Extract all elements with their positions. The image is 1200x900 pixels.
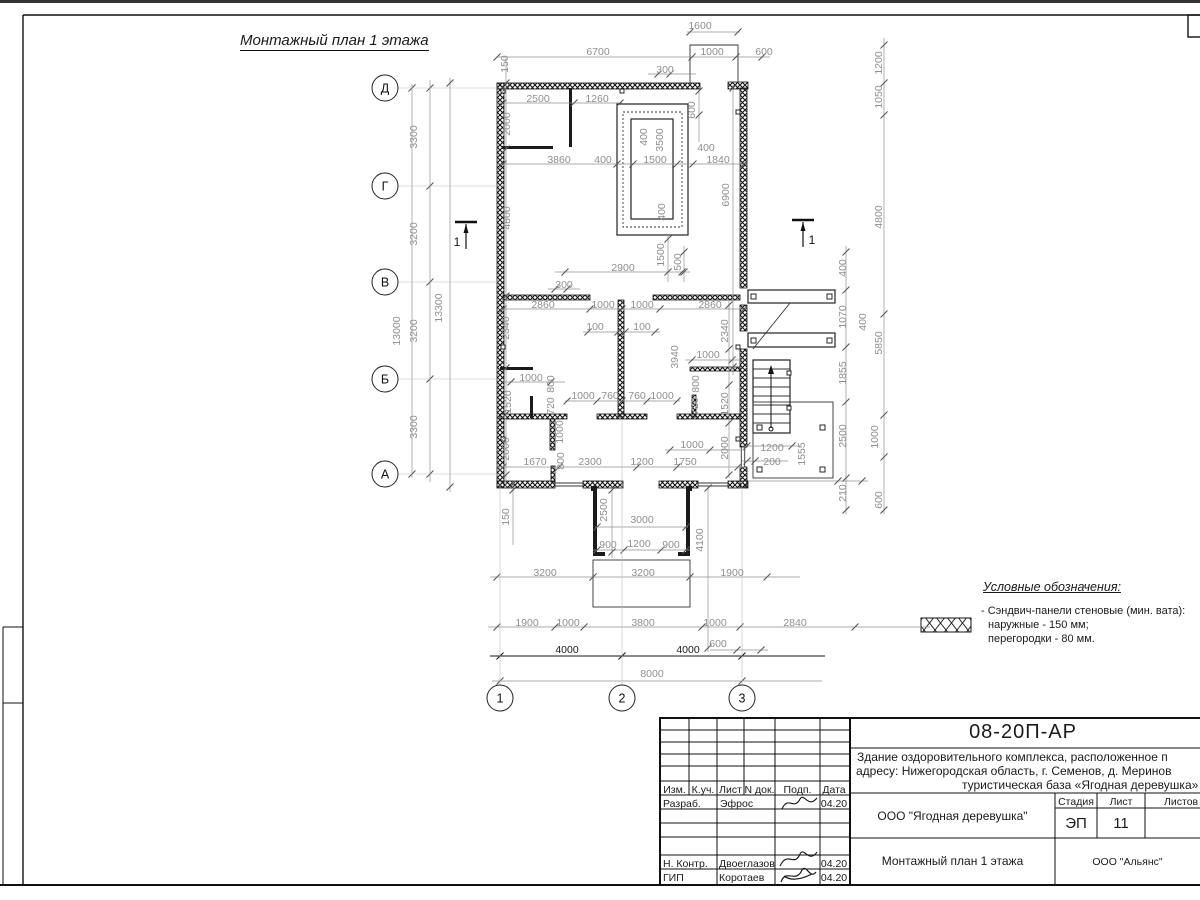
role-gip: ГИП — [663, 872, 684, 884]
dimension-label: 4000 — [555, 644, 579, 656]
dimension-label: 900 — [599, 539, 617, 551]
dimension-label: 760 — [628, 390, 646, 402]
dimension-label: 1070 — [837, 305, 849, 329]
axis-bubble-label: 2 — [619, 692, 626, 706]
dimension-label: 8000 — [640, 668, 664, 680]
dimension-label: 1855 — [837, 361, 849, 385]
col-list: Лист — [717, 784, 744, 796]
company-name: ООО "Альянс" — [1055, 856, 1200, 868]
dimension-label: 1000 — [630, 299, 654, 311]
dimension-label: 300 — [555, 279, 573, 291]
legend-line: перегородки - 80 мм. — [988, 633, 1095, 645]
dimension-label: 200 — [763, 456, 781, 468]
axis-bubble-label: 1 — [497, 692, 504, 706]
dimension-label: 1200 — [873, 51, 885, 75]
drawing-title: Монтажный план 1 этажа — [240, 32, 429, 51]
dimension-label: 100 — [586, 321, 604, 333]
dimension-label: 600 — [686, 101, 698, 119]
dimension-label: 600 — [755, 46, 773, 58]
signature — [776, 864, 820, 888]
project-description-line: туристическая база «Ягодная деревушка» — [962, 778, 1198, 792]
org-name: ООО "Ягодная деревушка" — [850, 809, 1055, 823]
dimension-label: 3200 — [408, 319, 420, 343]
drawing-name: Монтажный план 1 этажа — [850, 854, 1055, 868]
dimension-label: 3500 — [654, 128, 666, 152]
role-razrab: Разраб. — [663, 798, 701, 810]
dimension-label: 2500 — [526, 93, 550, 105]
dimension-label: 2340 — [719, 319, 731, 343]
dimension-label: 2000 — [500, 437, 512, 461]
dimension-label: 6900 — [720, 183, 732, 207]
dimension-label: 4100 — [694, 528, 706, 552]
dimension-label: 400 — [638, 128, 650, 146]
dimension-label: 1050 — [873, 85, 885, 109]
dimension-label: 4000 — [676, 644, 700, 656]
dimension-label: 800 — [555, 452, 567, 470]
staircase — [753, 303, 791, 433]
dimension-label: 3300 — [408, 125, 420, 149]
dimension-label: 900 — [662, 539, 680, 551]
dimension-label: 13300 — [433, 293, 445, 322]
dimension-label: 400 — [656, 203, 668, 221]
col-data: Дата — [820, 784, 848, 796]
dimension-label: 720 — [545, 397, 557, 415]
dimension-label: 400 — [697, 142, 715, 154]
dimension-label: 760 — [601, 390, 619, 402]
dimension-label: 500 — [672, 253, 684, 271]
dimension-label: 2860 — [698, 299, 722, 311]
dimension-label: 720 — [689, 397, 701, 415]
dimension-label: 400 — [857, 313, 869, 331]
dimension-label: 3800 — [631, 617, 655, 629]
dimension-label: 100 — [633, 321, 651, 333]
dimension-label: 1000 — [591, 299, 615, 311]
dimension-label: 150 — [499, 55, 511, 73]
col-izm: Изм. — [660, 784, 689, 796]
project-description-line: Здание оздоровительного комплекса, распо… — [857, 750, 1168, 764]
section-mark-label: 1 — [809, 233, 816, 247]
dimension-label: 4800 — [501, 206, 513, 230]
section-mark-label: 1 — [454, 235, 461, 249]
dimension-label: 2340 — [500, 316, 512, 340]
dimension-label: 1000 — [571, 390, 595, 402]
dimension-label: 1000 — [703, 617, 727, 629]
dimension-label: 600 — [709, 638, 727, 650]
dimension-label: 2840 — [783, 617, 807, 629]
dimension-label: 1200 — [627, 538, 651, 550]
dimension-label: 1000 — [556, 617, 580, 629]
date-nkontr: 04.20 — [820, 858, 848, 870]
dimension-label: 3300 — [408, 415, 420, 439]
stage-value: ЭП — [1055, 815, 1097, 832]
dimension-label: 1900 — [720, 567, 744, 579]
name-gip: Коротаев — [719, 872, 764, 884]
dimension-label: 800 — [545, 375, 557, 393]
dimension-label: 1600 — [688, 20, 712, 32]
axis-bubble-label: 3 — [739, 692, 746, 706]
dimension-label: 1200 — [760, 442, 784, 454]
col-ndok: N док. — [744, 784, 775, 796]
axis-bubble-label: В — [381, 276, 389, 290]
dimension-label: 3200 — [408, 222, 420, 246]
dimension-label: 1000 — [696, 349, 720, 361]
dimension-label: 800 — [690, 375, 702, 393]
dimension-label: 1000 — [680, 439, 704, 451]
date-razrab: 04.20 — [820, 798, 848, 810]
dimension-label: 3940 — [669, 345, 681, 369]
legend-swatch-sandwich-panel — [921, 618, 971, 632]
dimension-label: 3000 — [630, 514, 654, 526]
dimension-label: 400 — [837, 259, 849, 277]
section-mark-arrow — [464, 224, 469, 233]
project-description-line: адресу: Нижегородская область, г. Семено… — [856, 764, 1171, 778]
dimension-label: 4800 — [873, 205, 885, 229]
date-gip: 04.20 — [820, 872, 848, 884]
dimension-label: 1500 — [643, 154, 667, 166]
dimension-label: 5850 — [873, 331, 885, 355]
sheet-label: Лист — [1097, 796, 1145, 808]
dimension-label: 1750 — [673, 456, 697, 468]
dimension-label: 2300 — [578, 456, 602, 468]
dimension-label: 1260 — [585, 93, 609, 105]
dimension-label: 600 — [873, 491, 885, 509]
dimension-label: 2900 — [611, 262, 635, 274]
sheets-label: Листов — [1164, 796, 1198, 808]
name-razrab: Эфрос — [720, 798, 753, 810]
pool-detail — [617, 104, 688, 235]
dimension-label: 1000 — [700, 46, 724, 58]
dimension-label: 1200 — [630, 456, 654, 468]
dimension-label: 1520 — [502, 390, 514, 414]
dimension-label: 2860 — [531, 299, 555, 311]
dimension-label: 1000 — [554, 420, 566, 444]
drawing-sheet: 1600670010006003002500126015020006003860… — [0, 0, 1200, 900]
corner-doc-box — [1188, 15, 1200, 37]
dimension-label: 1840 — [706, 154, 730, 166]
legend-title: Условные обозначения: — [983, 580, 1121, 594]
axis-bubble-label: А — [381, 468, 390, 482]
section-mark-arrow — [801, 222, 806, 231]
axis-bubble-label: Г — [382, 180, 389, 194]
dimension-label: 1900 — [515, 617, 539, 629]
dimension-label: 150 — [500, 508, 512, 526]
dimension-label: 6700 — [586, 46, 610, 58]
dimension-label: 13000 — [391, 316, 403, 345]
dimension-label: 1670 — [523, 456, 547, 468]
dimension-label: 1500 — [655, 243, 667, 267]
stair-direction-arrow — [768, 365, 774, 374]
dimension-label: 300 — [656, 64, 674, 76]
dimension-label: 2000 — [719, 436, 731, 460]
dimension-label: 1000 — [650, 390, 674, 402]
dimension-label: 1000 — [869, 425, 881, 449]
dimension-label: 1000 — [519, 372, 543, 384]
dimension-label: 3200 — [533, 567, 557, 579]
dimension-label: 2500 — [598, 498, 610, 522]
name-nkontr: Двоеглазов — [719, 858, 775, 870]
dimension-label: 210 — [837, 484, 849, 502]
sheet-number: 11 — [1097, 815, 1145, 832]
doc-number: 08-20П-АР — [850, 721, 1196, 744]
dimension-label: 2000 — [501, 112, 513, 136]
axis-bubble-label: Д — [381, 82, 390, 96]
dimension-label: 1520 — [719, 392, 731, 416]
dimension-label: 1555 — [796, 442, 808, 466]
dimension-label: 3860 — [547, 154, 571, 166]
col-kuch: К.уч. — [689, 784, 717, 796]
legend-line: наружные - 150 мм; — [988, 619, 1089, 631]
dimension-label: 2500 — [837, 424, 849, 448]
stage-label: Стадия — [1055, 796, 1097, 808]
dimension-label: 400 — [594, 154, 612, 166]
signature — [779, 793, 821, 815]
dimension-label: 3200 — [631, 567, 655, 579]
legend-line: - Сэндвич-панели стеновые (мин. вата): — [981, 605, 1185, 617]
axis-bubble-label: Б — [381, 373, 389, 387]
role-nkontr: Н. Контр. — [663, 858, 708, 870]
